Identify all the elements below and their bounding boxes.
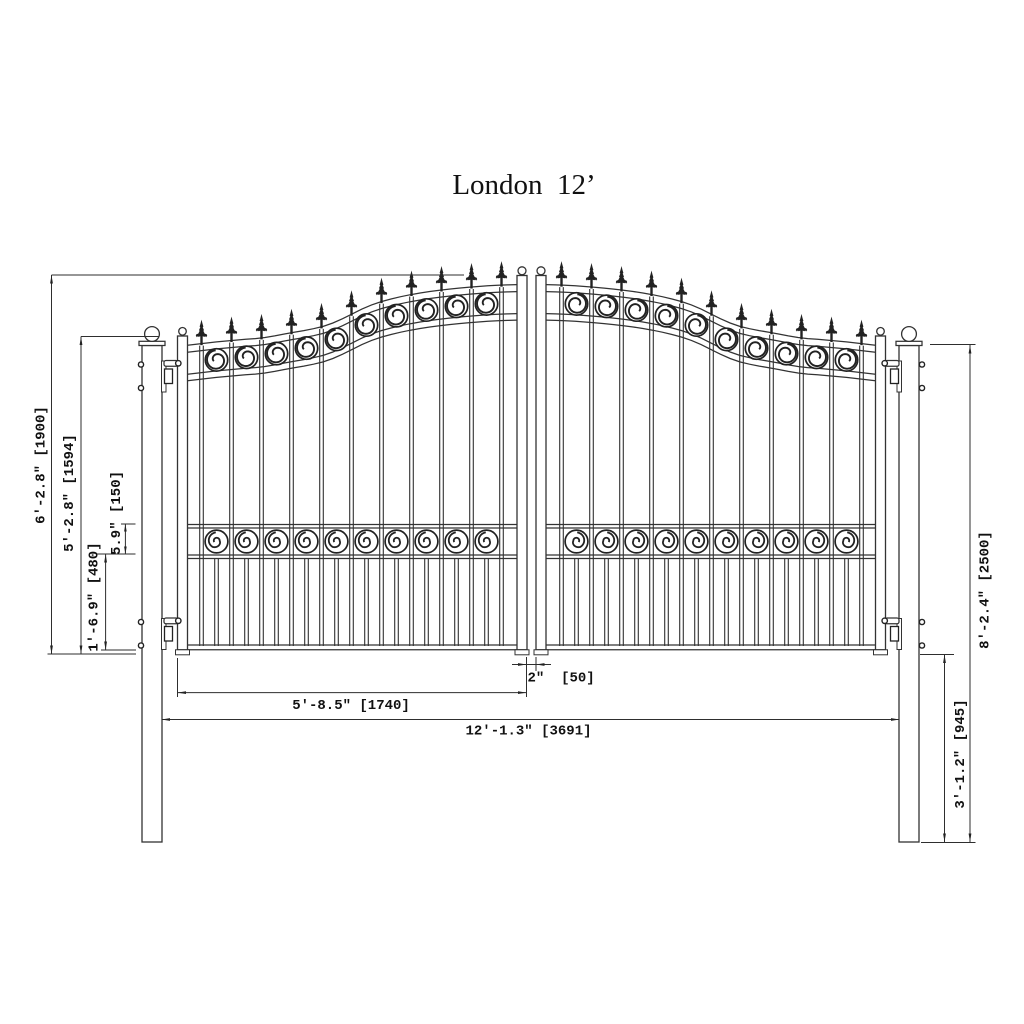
- svg-text:3'-1.2" [945]: 3'-1.2" [945]: [953, 699, 969, 808]
- svg-text:1'-6.9" [480]: 1'-6.9" [480]: [87, 542, 103, 651]
- svg-text:8'-2.4" [2500]: 8'-2.4" [2500]: [978, 531, 994, 649]
- svg-text:5.9" [150]: 5.9" [150]: [109, 471, 125, 555]
- svg-text:5'-8.5" [1740]: 5'-8.5" [1740]: [292, 698, 410, 714]
- svg-text:6'-2.8" [1900]: 6'-2.8" [1900]: [34, 406, 50, 524]
- svg-text:2" [50]: 2" [50]: [528, 671, 595, 687]
- svg-text:5'-2.8" [1594]: 5'-2.8" [1594]: [62, 434, 78, 552]
- svg-text:12'-1.3" [3691]: 12'-1.3" [3691]: [465, 724, 591, 740]
- svg-text:London 12’: London 12’: [452, 169, 595, 201]
